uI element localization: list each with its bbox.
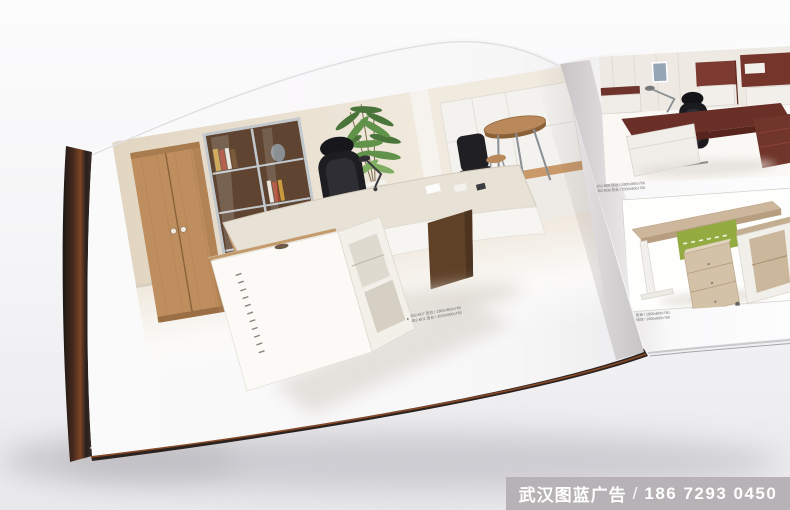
right-page-photo-bottom xyxy=(622,188,790,322)
right-page-photo-top xyxy=(596,41,790,189)
photo-of-catalog: ▲ JB2-B08 班台 / 1800x860x760 JB2-B08 班台 /… xyxy=(0,0,790,510)
left-page: HUNGLONGGUANG 办公家具 OFFICE FURNITURE SERI… xyxy=(88,39,645,456)
brand-logo-mark xyxy=(125,120,128,123)
watermark-separator: / xyxy=(633,484,639,504)
book-illustration: ▲ JB2-B08 班台 / 1800x860x760 JB2-B08 班台 /… xyxy=(0,0,790,510)
wall-art xyxy=(652,62,667,82)
watermark-company: 武汉图蓝广告 xyxy=(519,481,627,506)
sideboard xyxy=(598,86,641,114)
watermark-bar: 武汉图蓝广告 / 186 7293 0450 xyxy=(506,477,790,510)
watermark-phone: 186 7293 0450 xyxy=(644,484,777,504)
